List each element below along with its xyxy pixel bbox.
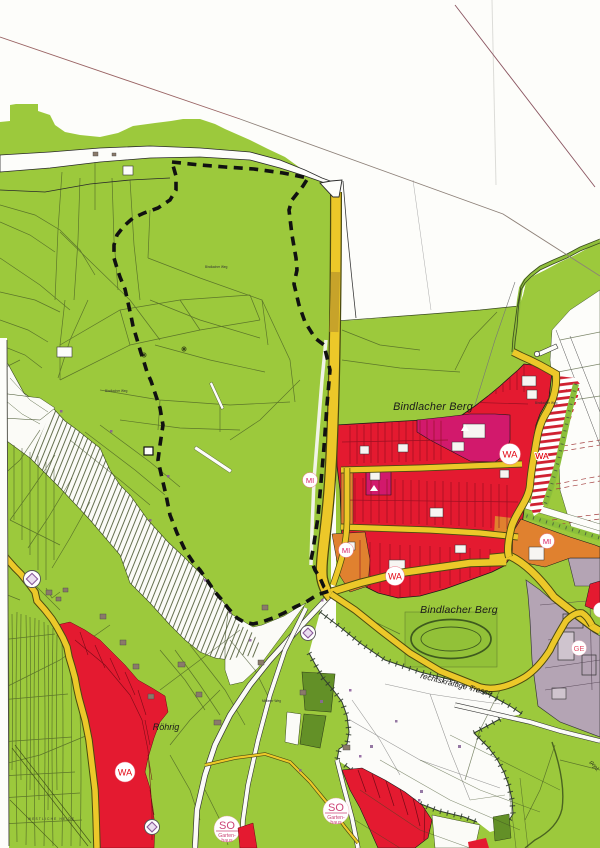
svg-text:MI: MI (543, 537, 551, 546)
svg-text:MI: MI (306, 476, 314, 485)
svg-text:Bindlacher Berg: Bindlacher Berg (393, 401, 473, 413)
svg-text:Bindlacher Weg: Bindlacher Weg (535, 401, 558, 405)
svg-text:Mittlerer Weg: Mittlerer Weg (262, 699, 281, 703)
svg-text:WESTLICHE HEIDE: WESTLICHE HEIDE (28, 817, 75, 821)
svg-text:haus: haus (330, 820, 342, 826)
svg-text:WA: WA (503, 450, 519, 461)
svg-text:SO: SO (328, 802, 344, 814)
svg-text:WA: WA (118, 768, 132, 778)
svg-text:WA: WA (388, 572, 402, 582)
svg-text:WA: WA (535, 451, 549, 461)
svg-text:Bindlacher Weg: Bindlacher Weg (205, 265, 228, 269)
svg-text:Röhrig: Röhrig (153, 722, 180, 732)
svg-text:GE: GE (574, 644, 585, 653)
svg-text:Bindlacher Berg: Bindlacher Berg (420, 604, 498, 616)
svg-text:SO: SO (219, 820, 235, 832)
svg-text:MI: MI (342, 546, 350, 555)
svg-text:Bindlacher Weg: Bindlacher Weg (105, 389, 128, 393)
svg-text:haus: haus (221, 838, 233, 844)
